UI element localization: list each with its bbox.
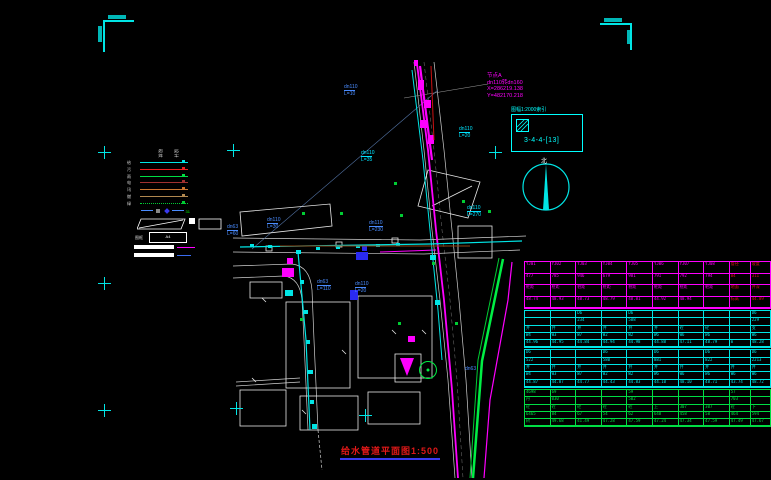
- table-cell: 48.71: [704, 380, 730, 387]
- table-cell: 井: [627, 365, 653, 372]
- table-cell: 477: [525, 274, 551, 286]
- table-cell: W6: [653, 333, 679, 340]
- buildings: [240, 170, 492, 430]
- table-cell: [704, 390, 730, 397]
- table-cell: [751, 390, 771, 397]
- table-cell: 47.67: [751, 419, 771, 426]
- table-cell: [653, 390, 679, 397]
- table-cell: [679, 350, 705, 357]
- pipe-label: dn110L=10: [344, 85, 358, 97]
- legend-item: 绿: [127, 201, 197, 207]
- table-cell: W3: [551, 372, 577, 379]
- table-cell: 井: [704, 365, 730, 372]
- table-cell: 580: [602, 358, 628, 365]
- table-cell: 井: [551, 365, 577, 372]
- table-cell: W2: [602, 372, 628, 379]
- grid-cross-icon: [98, 146, 111, 159]
- table-cell: 594: [751, 412, 771, 419]
- table-cell: 桩距: [627, 285, 653, 297]
- table-cell: 54: [602, 412, 628, 419]
- table-cell: D6: [751, 350, 771, 357]
- roads: [233, 62, 526, 478]
- table-cell: 桩距: [576, 285, 602, 297]
- pipe-label: dn110L=20: [459, 127, 473, 139]
- pipe-label: dn110L=35: [361, 151, 375, 163]
- table-cell: 丹: [525, 397, 551, 404]
- pipe-label: dn110L=20: [355, 282, 369, 294]
- table-cell: 67: [576, 412, 602, 419]
- table-cell: 47.59: [704, 419, 730, 426]
- table-cell: D6: [525, 350, 551, 357]
- table-cell: 229: [751, 318, 771, 325]
- profile-table: YJ01YJ02YJ03YJ04YJ05YJ06YJ07YJ08管径坡度4777…: [524, 261, 771, 428]
- cad-viewport: 北 现状 设计 给污雨电讯燃绿 31 图框 A4: [0, 0, 771, 480]
- table-cell: 58: [704, 412, 730, 419]
- table-cell: 井: [679, 365, 705, 372]
- table-cell: 946: [576, 274, 602, 286]
- table-cell: [551, 350, 577, 357]
- table-cell: 44.92: [653, 297, 679, 309]
- table-cell: W6: [679, 372, 705, 379]
- table-cell: 44.10: [653, 380, 679, 387]
- legend-frame-label: 图框: [135, 235, 143, 241]
- table-cell: 桩距: [602, 285, 628, 297]
- table-cell: [525, 318, 551, 325]
- table-cell: [551, 311, 577, 318]
- table-cell: 47.34: [679, 419, 705, 426]
- pipe-label: dn63L=60: [227, 225, 238, 237]
- table-cell: 井: [627, 326, 653, 333]
- table-cell: 57: [730, 390, 751, 397]
- table-cell: 464: [730, 412, 751, 419]
- pipe-label: dn110L=230: [369, 221, 383, 233]
- table-cell: D6: [602, 350, 628, 357]
- table-cell: 307: [679, 405, 705, 412]
- table-cell: 48.93: [551, 297, 577, 309]
- table-cell: YJ06: [653, 262, 679, 274]
- table-cell: [679, 311, 705, 318]
- table-cell: 62: [627, 412, 653, 419]
- table-section: D6D6D6234588229井井井井井井砼砼支W4W3W7W2W2W6W6W6…: [524, 310, 771, 348]
- table-cell: W2: [602, 333, 628, 340]
- pipe-label: dn110L=270: [467, 206, 481, 218]
- table-cell: [653, 318, 679, 325]
- table-section: D6D6D6D6D65225808818222213井井井井井井井井井井W4W3…: [524, 349, 771, 387]
- table-cell: [679, 358, 705, 365]
- table-cell: 44.98: [627, 340, 653, 347]
- table-cell: W6: [704, 372, 730, 379]
- legend-item: 电: [127, 180, 197, 186]
- table-cell: 坡度: [751, 262, 771, 274]
- table-cell: W6: [751, 372, 771, 379]
- table-cell: 794: [704, 274, 730, 286]
- table-cell: D6: [653, 350, 679, 357]
- table-cell: W3: [551, 333, 577, 340]
- table-cell: [627, 358, 653, 365]
- table-cell: 522: [525, 358, 551, 365]
- table-section: YJ01YJ02YJ03YJ04YJ05YJ06YJ07YJ08管径坡度4777…: [524, 261, 771, 309]
- table-cell: [653, 397, 679, 404]
- table-cell: 84: [551, 412, 577, 419]
- table-cell: [730, 358, 751, 365]
- table-cell: 上: [653, 405, 679, 412]
- table-cell: 47.59: [627, 419, 653, 426]
- table-cell: W6: [679, 333, 705, 340]
- table-cell: 030: [551, 397, 577, 404]
- north-needle: [543, 164, 549, 210]
- legend-valve-symbols: 31: [141, 209, 190, 214]
- table-cell: 砼: [576, 405, 602, 412]
- table-cell: [730, 333, 751, 340]
- table-cell: 48.72: [751, 380, 771, 387]
- legend-item: 给: [127, 160, 197, 166]
- pipe-label: dn63: [465, 367, 476, 372]
- grid-cross-icon: [98, 277, 111, 290]
- table-cell: 井: [653, 326, 679, 333]
- table-cell: 砼: [627, 405, 653, 412]
- table-cell: [730, 311, 751, 318]
- table-cell: [602, 390, 628, 397]
- table-cell: [679, 390, 705, 397]
- table-cell: W7: [576, 372, 602, 379]
- table-cell: 44.89: [751, 297, 771, 309]
- table-cell: W6: [653, 372, 679, 379]
- table-cell: [576, 390, 602, 397]
- sheet-corner-marker-topleft: [98, 15, 134, 52]
- table-cell: 41.49: [576, 419, 602, 426]
- grid-cross-icon: [227, 144, 240, 157]
- legend-item: 讯: [127, 187, 197, 193]
- table-cell: 地面: [730, 285, 751, 297]
- table-cell: 砼: [525, 405, 551, 412]
- drawing-title-text: 给水管道平面图1:500: [340, 444, 440, 457]
- table-cell: 588: [627, 318, 653, 325]
- coord-note-line4: Y=482170.218: [487, 93, 523, 100]
- table-cell: [551, 318, 577, 325]
- table-cell: 48.94: [679, 297, 705, 309]
- table-cell: 砼: [704, 326, 730, 333]
- table-cell: 458: [679, 412, 705, 419]
- table-cell: 48.74: [525, 297, 551, 309]
- table-cell: 44.43: [602, 380, 628, 387]
- legend-item: 污: [127, 167, 197, 173]
- table-cell: 44.95: [551, 340, 577, 347]
- table-cell: YJ08: [704, 262, 730, 274]
- grid-cross-icon: [230, 402, 243, 415]
- table-cell: 桩距: [704, 285, 730, 297]
- table-cell: 47.24: [653, 419, 679, 426]
- table-cell: [576, 358, 602, 365]
- table-cell: [551, 358, 577, 365]
- table-cell: 桩距: [653, 285, 679, 297]
- table-cell: [653, 311, 679, 318]
- table-cell: [627, 350, 653, 357]
- drawing-title: 给水管道平面图1:500: [340, 444, 440, 460]
- legend-a4-label: A4: [166, 234, 171, 239]
- table-section: 4698695957丹030502703砼砼砼砼砼上307307砼下646584…: [524, 389, 771, 427]
- table-cell: [730, 350, 751, 357]
- drawing-title-underline: [340, 458, 440, 460]
- detail-box-frame: 3-4-4-[13]: [511, 114, 583, 152]
- pipe-label: dn110L=30: [267, 218, 281, 230]
- coord-note-line3: X=286219.138: [487, 86, 523, 93]
- table-cell: 井: [653, 365, 679, 372]
- table-cell: 49.68: [551, 419, 577, 426]
- table-cell: W6: [751, 333, 771, 340]
- table-cell: 48.79: [704, 340, 730, 347]
- table-cell: 井: [602, 365, 628, 372]
- node-coordinate-note: 节点A dn110转dn160 X=286219.138 Y=482170.21…: [487, 73, 523, 99]
- table-cell: [704, 297, 730, 309]
- table-cell: 785: [551, 274, 577, 286]
- table-cell: 下: [751, 405, 771, 412]
- table-cell: 311: [751, 274, 771, 286]
- table-cell: 支: [751, 326, 771, 333]
- table-cell: 981: [627, 274, 653, 286]
- table-cell: 2213: [751, 358, 771, 365]
- table-cell: YJ07: [679, 262, 705, 274]
- table-cell: 6465: [525, 412, 551, 419]
- table-cell: 井: [551, 326, 577, 333]
- table-cell: 砼: [602, 405, 628, 412]
- table-cell: 48.81: [627, 297, 653, 309]
- table-cell: D6: [576, 311, 602, 318]
- table-cell: [730, 318, 751, 325]
- table-cell: 791: [653, 274, 679, 286]
- table-cell: YJ02: [551, 262, 577, 274]
- table-cell: 井: [730, 365, 751, 372]
- table-cell: [704, 318, 730, 325]
- table-cell: 47.28: [602, 419, 628, 426]
- table-cell: 桩距: [679, 285, 705, 297]
- table-cell: 44.87: [551, 380, 577, 387]
- north-arrow: 北: [523, 157, 569, 210]
- table-cell: 管径: [730, 262, 751, 274]
- table-cell: 48.79: [602, 297, 628, 309]
- table-cell: 703: [730, 397, 751, 404]
- table-cell: 69: [551, 390, 577, 397]
- table-cell: 234: [576, 318, 602, 325]
- table-cell: 822: [704, 358, 730, 365]
- table-cell: 881: [653, 358, 679, 365]
- table-cell: [576, 350, 602, 357]
- table-cell: [576, 397, 602, 404]
- red-line: [431, 66, 434, 140]
- table-cell: m: [730, 340, 751, 347]
- table-cell: 44.96: [525, 340, 551, 347]
- table-cell: D6: [751, 311, 771, 318]
- table-cell: D6: [627, 311, 653, 318]
- table-cell: 648: [653, 412, 679, 419]
- north-label: 北: [541, 157, 547, 165]
- table-cell: 44.88: [653, 340, 679, 347]
- pipe-label: dn63L=110: [317, 280, 331, 292]
- table-cell: 树: [525, 419, 551, 426]
- table-cell: 44.94: [602, 340, 628, 347]
- table-cell: [704, 311, 730, 318]
- legend-header-existing: 现状: [157, 149, 163, 158]
- table-cell: 502: [627, 397, 653, 404]
- table-cell: [679, 318, 705, 325]
- table-cell: 井: [576, 365, 602, 372]
- table-cell: 44.77: [576, 380, 602, 387]
- sheet-corner-marker-topright: [600, 18, 631, 50]
- legend-line-existing-pipe: [177, 255, 191, 256]
- table-cell: [602, 397, 628, 404]
- grid-cross-icon: [489, 146, 502, 159]
- table-cell: 44.83: [627, 380, 653, 387]
- table-cell: 47.11: [679, 340, 705, 347]
- legend-header-design: 设计: [173, 149, 179, 158]
- hydrant-flag-symbol: [400, 358, 414, 376]
- legend-bar-design-road: [134, 253, 174, 257]
- table-cell: W2: [627, 333, 653, 340]
- table-cell: 59: [627, 390, 653, 397]
- table-cell: YJ04: [602, 262, 628, 274]
- table-cell: W2: [627, 372, 653, 379]
- legend-item: 燃: [127, 194, 197, 200]
- legend-line-design-pipe: [177, 247, 195, 248]
- table-cell: [730, 326, 751, 333]
- table-cell: [525, 311, 551, 318]
- table-cell: 307: [704, 405, 730, 412]
- table-cell: YJ01: [525, 262, 551, 274]
- hatched-square-icon: [516, 119, 530, 133]
- table-cell: 4698: [525, 390, 551, 397]
- table-cell: 桩距: [551, 285, 577, 297]
- table-cell: 桩距: [525, 285, 551, 297]
- detail-box-code: 3-4-4-[13]: [524, 137, 559, 144]
- grid-cross-icon: [359, 409, 372, 422]
- table-cell: 砼: [730, 405, 751, 412]
- table-cell: W4: [525, 333, 551, 340]
- table-cell: 井深: [751, 285, 771, 297]
- table-cell: [679, 397, 705, 404]
- table-cell: D6: [704, 350, 730, 357]
- table-cell: 44.84: [576, 340, 602, 347]
- table-cell: [751, 397, 771, 404]
- detail-box-title: 图幅1:2000索引: [511, 107, 583, 114]
- table-cell: [602, 318, 628, 325]
- table-cell: W4: [525, 372, 551, 379]
- table-cell: 井: [751, 365, 771, 372]
- table-cell: 井: [525, 326, 551, 333]
- table-cell: 井: [602, 326, 628, 333]
- grid-cross-icon: [98, 404, 111, 417]
- table-cell: 792: [679, 274, 705, 286]
- table-cell: W7: [576, 333, 602, 340]
- table-cell: YJ05: [627, 262, 653, 274]
- table-cell: 47.49: [730, 419, 751, 426]
- table-cell: 48.73: [576, 297, 602, 309]
- table-cell: 标高: [730, 297, 751, 309]
- table-cell: 48.28: [751, 340, 771, 347]
- table-cell: 84: [730, 274, 751, 286]
- detail-index-box: 图幅1:2000索引 3-4-4-[13]: [511, 107, 583, 152]
- table-cell: W6: [704, 333, 730, 340]
- table-cell: 48.10: [679, 380, 705, 387]
- table-cell: W6: [730, 372, 751, 379]
- table-cell: YJ03: [576, 262, 602, 274]
- table-cell: 44.87: [525, 380, 551, 387]
- table-cell: 井: [525, 365, 551, 372]
- table-cell: 43.74: [730, 380, 751, 387]
- table-cell: 砼: [551, 405, 577, 412]
- table-cell: 井: [576, 326, 602, 333]
- table-cell: 679: [602, 274, 628, 286]
- table-cell: [704, 397, 730, 404]
- table-cell: 砼: [679, 326, 705, 333]
- legend-a4-box: A4: [149, 232, 187, 243]
- table-cell: [602, 311, 628, 318]
- legend-item: 雨: [127, 174, 197, 180]
- legend-bar-existing-road: [134, 245, 174, 249]
